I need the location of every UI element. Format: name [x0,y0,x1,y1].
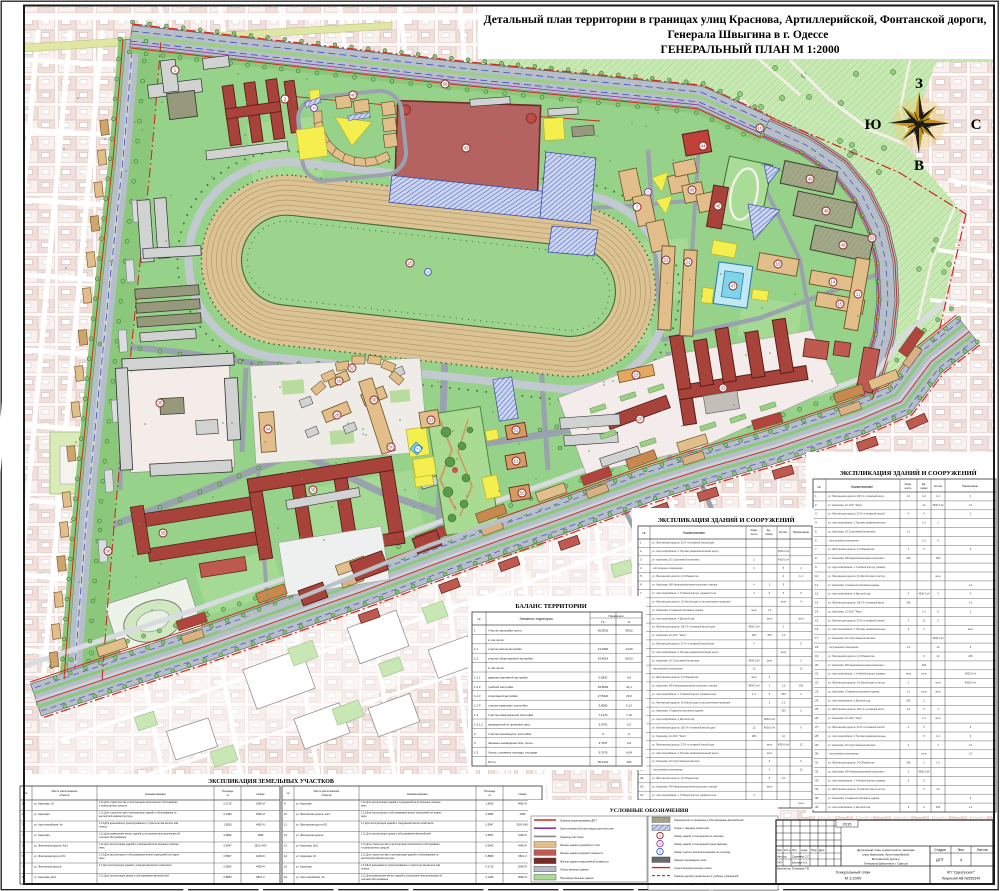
svg-text:34: 34 [266,427,271,432]
svg-text:16: 16 [426,270,430,274]
svg-text:ул. Краснова, 12 АЗС "Темп": ул. Краснова, 12 АЗС "Темп" [828,716,862,720]
svg-text:7,1270: 7,1270 [599,713,608,717]
svg-text:22: 22 [664,258,669,263]
svg-text:ул. Краснова: ул. Краснова [296,802,312,806]
svg-text:10: 10 [658,842,662,846]
svg-text:кв.м: кв.м [781,651,786,654]
svg-text:1.3.1.2: 1.3.1.2 [474,722,483,726]
svg-text:0,1499: 0,1499 [486,875,494,879]
svg-text:0,5832: 0,5832 [599,675,608,679]
svg-text:предприятий по хранению авто: предприятий по хранению авто [488,722,531,726]
svg-text:ул. Фонтанская дорога, 23 9: ул. Фонтанская дорога, 23 9-ти этажный ж… [828,725,885,729]
svg-text:14: 14 [831,280,836,285]
svg-text:ъектами обслуживания: ъектами обслуживания [99,836,127,839]
svg-text:Генеральный план: Генеральный план [836,870,871,875]
svg-text:спортивной застройки: спортивной застройки [488,694,518,698]
svg-text:44: 44 [701,144,706,149]
svg-text:29: 29 [815,743,819,747]
svg-text:16: 16 [284,875,288,879]
svg-text:измер: измер [765,533,773,536]
svg-text:ул. Артиллерийская, 2 Торго: ул. Артиллерийская, 2 Торгово-развлекате… [828,734,886,738]
svg-text:5821-V: 5821-V [518,854,527,858]
svg-text:ул. Фонтанская дорога, 23 9: ул. Фонтанская дорога, 23 9-ти этажный ж… [652,642,714,646]
svg-text:30: 30 [372,398,377,403]
svg-text:2569-VI: 2569-VI [518,865,527,869]
svg-text:Производственные здания: Производственные здания [560,876,594,880]
svg-text:кв.м: кв.м [921,753,926,756]
svg-text:2569-VI: 2569-VI [256,812,265,816]
svg-text:32: 32 [815,769,819,773]
svg-text:1,5829: 1,5829 [486,802,494,806]
svg-text:18: 18 [815,645,819,649]
svg-text:ул. Фонтанская дор-га 8/1: ул. Фонтанская дор-га 8/1 [296,823,328,827]
svg-text:33: 33 [815,778,819,782]
svg-text:кв.м: кв.м [781,601,786,604]
svg-text:ул. Артиллерийская, 2 Торго: ул. Артиллерийская, 2 Торгово-развлекате… [652,751,719,755]
svg-text:кв.м: кв.м [968,628,973,631]
svg-text:Генерала Швыгина в г. Одессе: Генерала Швыгина в г. Одессе [864,862,908,866]
svg-text:21: 21 [686,260,691,265]
svg-text:ул. Краснова, 10 Спортивный: ул. Краснова, 10 Спортивный комплекс [652,658,700,662]
svg-text:250: 250 [906,556,911,560]
svg-text:улиц Краснова, Артиллерийской,: улиц Краснова, Артиллерийской, [862,853,910,857]
svg-text:Этаж-: Этаж- [904,482,911,486]
svg-text:11: 11 [856,292,861,297]
svg-text:1-2: 1-2 [922,494,926,498]
svg-text:участки общественной застройки: участки общественной застройки [488,657,533,661]
svg-text:Наименование: Наименование [145,792,166,796]
svg-text:учебной застройки: учебной застройки [488,685,514,689]
svg-text:29: 29 [337,379,342,384]
svg-text:13: 13 [284,844,288,848]
svg-text:9,2866: 9,2866 [486,812,494,816]
svg-text:ул. Артиллерийская, 1 Учебн: ул. Артиллерийская, 1 Учебный корпус уни… [652,793,717,797]
svg-text:Границы детских дошкольных и у: Границы детских дошкольных и учебных учр… [674,874,739,878]
svg-text:1.1 Для эксплуатации зданий и: 1.1 Для эксплуатации зданий и сооружений… [361,822,434,825]
svg-text:49: 49 [841,243,846,248]
svg-text:2999: 2999 [520,812,526,816]
svg-text:ул. Фонтанская дорога, 14 О: ул. Фонтанская дорога, 14 Общежитие [828,654,875,658]
svg-text:№: № [25,792,28,795]
svg-text:измер: измер [920,487,928,490]
svg-text:56: 56 [443,82,448,87]
svg-text:ул. Фонтанская дорога, 14 О: ул. Фонтанская дорога, 14 Общежитие [652,574,699,578]
svg-text:кв.м: кв.м [906,673,911,676]
svg-text:ул. Фонтанская дорога, 23 9: ул. Фонтанская дорога, 23 9-ти этажный ж… [652,541,714,545]
svg-text:53: 53 [870,236,875,241]
svg-text:4500,0 м²: 4500,0 м² [748,658,759,662]
svg-text:З: З [915,76,923,92]
svg-text:Номер: Номер [519,792,528,796]
svg-text:47: 47 [731,284,736,289]
svg-text:ул. Краснова, 3 Администрат: ул. Краснова, 3 Административное здание [652,608,704,612]
svg-text:Кол-во: Кол-во [934,484,943,488]
svg-text:1-2: 1-2 [969,752,973,756]
svg-text:3: 3 [659,850,661,854]
svg-text:№: № [477,617,480,621]
svg-text:плекса: плекса [99,826,108,829]
svg-text:250: 250 [799,684,804,688]
svg-text:4500,0 м²: 4500,0 м² [748,625,759,629]
svg-text:ул. Фонтанская дорога, 16 Ж: ул. Фонтанская дорога, 16 Жилой дом со в… [828,574,886,578]
svg-text:в том числе:: в том числе: [488,666,505,670]
svg-text:Место расположения: Место расположения [52,789,78,793]
svg-text:кв.м: кв.м [935,690,940,693]
svg-text:23: 23 [312,106,316,110]
svg-text:35: 35 [815,796,819,800]
svg-text:27,5320: 27,5320 [598,694,609,698]
svg-text:Лист: Лист [792,849,798,852]
svg-text:1-2: 1-2 [969,583,973,587]
svg-text:Примечание: Примечание [962,484,979,488]
svg-text:19: 19 [815,654,819,658]
svg-text:Генерала Швыгина в г. Одессе: Генерала Швыгина в г. Одессе [668,28,829,41]
svg-text:ул. Артиллерийская, 2 Торго: ул. Артиллерийская, 2 Торгово-развлекате… [652,650,719,654]
svg-text:15: 15 [838,302,843,307]
svg-text:4500,0 м²: 4500,0 м² [778,742,789,746]
svg-text:ул. Краснова, 6/8 Канализац: ул. Краснова, 6/8 Канализационная насосн… [652,784,718,788]
svg-text:кв.м: кв.м [935,575,940,578]
svg-text:Номер зданий и сооружений суще: Номер зданий и сооружений существующих [674,842,728,846]
svg-text:14,60: 14,60 [625,647,633,651]
svg-text:ул. Краснова, 12 АЗС "Темп": ул. Краснова, 12 АЗС "Темп" [828,609,862,613]
svg-text:Участки застройки, всего: Участки застройки, всего [488,628,522,632]
svg-text:250: 250 [968,654,973,658]
svg-text:250: 250 [936,556,941,560]
svg-text:4500,0 м²: 4500,0 м² [932,503,943,507]
svg-text:95,4341: 95,4341 [598,760,609,764]
svg-text:Ю: Ю [865,117,882,133]
svg-text:ул. Артиллерийская, 4а: ул. Артиллерийская, 4а [296,875,325,879]
svg-text:52: 52 [514,428,519,433]
svg-text:0,5947: 0,5947 [486,823,494,827]
svg-text:Жилые здания усадебного типа: Жилые здания усадебного типа [560,843,600,847]
svg-text:Общественные здания: Общественные здания [560,868,589,872]
svg-text:2015: 2015 [843,822,853,827]
svg-text:1.2.2: 1.2.2 [474,685,481,689]
svg-text:кв.м: кв.м [751,676,756,679]
svg-text:Улицы, основные проезды, площа: Улицы, основные проезды, площади [488,751,538,755]
svg-text:12: 12 [815,592,819,596]
svg-text:- встроенные помещения: - встроенные помещения [652,668,683,671]
svg-text:ул. Фонтанская дорога, 16 Ж: ул. Фонтанская дорога, 16 Жилой дом со в… [828,787,886,791]
svg-text:№: № [287,792,290,795]
svg-text:99,02: 99,02 [625,628,633,632]
svg-text:15: 15 [815,618,819,622]
svg-text:1.11 Для эксплуатации зданий и: 1.11 Для эксплуатации зданий и сооружени… [99,843,179,846]
svg-text:27: 27 [815,725,819,729]
svg-text:Зеленые насаждения общ. польз.: Зеленые насаждения общ. польз. [488,741,534,745]
svg-text:в том числе:: в том числе: [488,638,505,642]
svg-text:4500,0 м²: 4500,0 м² [764,726,775,730]
svg-text:Граница участочка: Граница участочка [560,835,584,839]
svg-text:0,8580: 0,8580 [486,854,494,858]
svg-text:1.2.3: 1.2.3 [474,694,481,698]
svg-text:250: 250 [936,805,941,809]
svg-text:6,04: 6,04 [626,751,632,755]
svg-text:15: 15 [284,865,288,869]
svg-text:ул. Артиллерийская, 1 Учебн: ул. Артиллерийская, 1 Учебный корпус уни… [652,692,717,696]
svg-text:3,9: 3,9 [627,741,631,745]
svg-text:объекта: объекта [60,793,70,797]
svg-text:Детальный план территории в гр: Детальный план территории в границах [857,848,915,852]
svg-text:ул. Краснова: ул. Краснова [34,833,50,837]
svg-text:торгово-развлекат. застройки: торгово-развлекат. застройки [488,704,528,708]
svg-text:20: 20 [638,417,643,422]
svg-text:1.1: 1.1 [474,647,478,651]
svg-text:14: 14 [284,854,288,858]
svg-text:1.11 Для эксплуатации домов и: 1.11 Для эксплуатации домов и обслуживан… [99,875,169,878]
svg-text:4493-IV: 4493-IV [256,865,265,869]
svg-text:54: 54 [416,447,420,451]
svg-text:4500,0 м²: 4500,0 м² [918,592,929,596]
svg-text:я транспортных средств: я транспортных средств [99,805,128,808]
svg-text:7,16: 7,16 [626,713,632,717]
svg-text:0,1499: 0,1499 [224,812,232,816]
svg-text:2569-VI: 2569-VI [518,875,527,879]
svg-text:ул. Артиллерийская, 2 Торго: ул. Артиллерийская, 2 Торгово-развлекате… [828,521,886,525]
svg-text:ул. Фонтанская дорога, 14 О: ул. Фонтанская дорога, 14 Общежитие [652,776,699,780]
svg-text:ул. Фонтанская дорога, 18/1: ул. Фонтанская дорога, 18/1 4-х этажный … [828,601,885,605]
svg-text:ул. Краснова, 10 Спортивный: ул. Краснова, 10 Спортивный комплекс [828,743,876,747]
svg-text:ул. Артиллерийская, 1 Учебн: ул. Артиллерийская, 1 Учебный корпус уни… [828,672,886,676]
svg-text:66,53: 66,53 [625,657,633,661]
svg-text:10: 10 [758,126,763,131]
svg-text:ул. Краснова, 10 Спортивный: ул. Краснова, 10 Спортивный комплекс [652,759,700,763]
svg-text:ул. Артиллерийская, 4 Детск: ул. Артиллерийская, 4 Детский сад [652,616,695,620]
svg-text:Лист: Лист [957,848,965,852]
svg-text:Место расположения: Место расположения [314,789,340,793]
svg-text:ул. Фонтанская дорога, 18/1: ул. Фонтанская дорога, 18/1 4-х этажный … [828,494,885,498]
svg-text:1: 1 [659,834,661,838]
svg-text:Ед.: Ед. [922,482,926,486]
svg-text:0,0963: 0,0963 [224,865,232,869]
svg-text:19: 19 [776,262,781,267]
svg-text:ГЕНЕРАЛЬНЫЙ ПЛАН М 1:2000: ГЕНЕРАЛЬНЫЙ ПЛАН М 1:2000 [660,42,839,56]
svg-text:ность: ность [751,533,758,536]
svg-text:5,9762: 5,9762 [599,722,608,726]
svg-text:Дата: Дата [819,849,825,852]
svg-text:9,2866: 9,2866 [224,833,232,837]
svg-text:кв.м: кв.м [921,673,926,676]
svg-text:ЭКСПЛИКАЦИЯ ЗДАНИЙ И СООРУЖ: ЭКСПЛИКАЦИЯ ЗДАНИЙ И СООРУЖЕНИЙ [839,469,976,477]
svg-text:13: 13 [815,601,819,605]
svg-text:4681-IV: 4681-IV [518,802,527,806]
svg-text:38: 38 [106,549,111,554]
svg-text:48: 48 [824,209,829,214]
svg-text:Кол.уч: Кол.уч [784,849,792,852]
svg-text:1.13 Для эксплуатации и обслуж: 1.13 Для эксплуатации и обслуживания жил… [99,854,180,857]
svg-text:ул. Краснова, 10 Спортивный: ул. Краснова, 10 Спортивный комплекс [652,557,700,561]
svg-text:1.2.1: 1.2.1 [474,675,481,679]
svg-text:1.1 Для эксплуатации зданий и: 1.1 Для эксплуатации зданий и сооружений… [99,864,172,867]
svg-text:1-2: 1-2 [907,645,911,649]
svg-text:250: 250 [781,692,786,696]
svg-text:Участки производств. застройки: Участки производств. застройки [488,732,532,736]
svg-text:250: 250 [906,761,911,765]
svg-text:0,5947: 0,5947 [224,844,232,848]
svg-text:6,13: 6,13 [626,704,632,708]
svg-text:кв.м: кв.м [767,743,772,746]
svg-text:Наименование: Наименование [407,792,428,796]
svg-text:29,6: 29,6 [626,694,632,698]
svg-text:Подп: Подп [811,849,817,852]
svg-text:я транспортных средств: я транспортных средств [361,847,390,850]
svg-text:Номер: Номер [257,792,266,796]
svg-text:ул. Краснова, 3 Администрат: ул. Краснова, 3 Административное здание [828,583,880,587]
svg-text:ул. Артиллерийская, 4 Детск: ул. Артиллерийская, 4 Детский сад [828,698,871,702]
svg-text:Граница моделирования ДПТ: Граница моделирования ДПТ [560,818,597,822]
svg-text:кв.м: кв.м [751,609,756,612]
svg-text:25: 25 [408,261,413,266]
svg-text:ул. Фонтанская дорога, 18/1: ул. Фонтанская дорога, 18/1 4-х этажный … [828,707,885,711]
svg-text:ул. Фонтанская дорога, 18/1: ул. Фонтанская дорога, 18/1 4-х этажный … [652,625,715,629]
svg-text:объекта: объекта [322,793,332,797]
svg-text:ул. Краснова, 12 АЗС "Темп": ул. Краснова, 12 АЗС "Темп" [828,503,862,507]
svg-text:1-2: 1-2 [922,716,926,720]
svg-text:ул. Краснова, 6/8 Канализац: ул. Краснова, 6/8 Канализационная насосн… [828,556,885,560]
svg-text:4500,0 м²: 4500,0 м² [778,557,789,561]
svg-text:Номер зданий и сооружений по г: Номер зданий и сооружений по генплану [674,834,724,838]
svg-text:14: 14 [815,609,819,613]
svg-text:ЭКСПЛИКАЦИЯ ЗДАНИЙ И СООРУЖ: ЭКСПЛИКАЦИЯ ЗДАНИЙ И СООРУЖЕНИЙ [657,516,794,524]
svg-text:1.2: 1.2 [474,657,478,661]
svg-text:Элементы территории: Элементы территории [519,617,552,621]
svg-text:1-2: 1-2 [799,574,803,578]
svg-text:1-2: 1-2 [969,601,973,605]
svg-text:1-2: 1-2 [768,608,772,612]
svg-text:ул. Артиллерийская, 1 Учебн: ул. Артиллерийская, 1 Учебный корпус уни… [828,778,886,782]
svg-text:ЭКСПЛИКАЦИЯ ЗЕМЕЛЬНЫХ УЧАСТКОВ: ЭКСПЛИКАЦИЯ ЗЕМЕЛЬНЫХ УЧАСТКОВ [208,779,334,785]
svg-text:1-2: 1-2 [907,689,911,693]
svg-text:1.11 Для эксплуатации зданий и: 1.11 Для эксплуатации зданий и сооружени… [361,801,441,804]
svg-text:ул. Краснова, 3 Администрат: ул. Краснова, 3 Административное здание [652,709,704,713]
svg-text:ул. Артиллерийская, 2 Торго: ул. Артиллерийская, 2 Торгово-развлекате… [652,549,719,553]
svg-text:65,9032: 65,9032 [598,628,609,632]
svg-text:ул. Краснова, 16: ул. Краснова, 16 [296,854,316,858]
svg-text:10: 10 [284,812,288,816]
svg-text:Итого: Итого [488,760,496,764]
svg-text:5821-V: 5821-V [256,875,265,879]
svg-text:- встроенные помещения: - встроенные помещения [828,646,859,649]
svg-text:ул. Краснова, 6/8 Канализац: ул. Краснова, 6/8 Канализационная насосн… [828,769,885,773]
svg-text:КП "Одеспроект": КП "Одеспроект" [947,871,976,875]
svg-text:250: 250 [906,601,911,605]
svg-text:кв.м: кв.м [767,785,772,788]
svg-text:250: 250 [781,709,786,713]
svg-text:ул. Краснова, 10 Спортивный: ул. Краснова, 10 Спортивный комплекс [828,529,876,533]
svg-text:4493-IV: 4493-IV [518,833,527,837]
svg-text:5,7679: 5,7679 [599,751,608,755]
svg-text:В: В [914,158,924,174]
svg-text:ул. Краснова, 10 Спортивный: ул. Краснова, 10 Спортивный комплекс [828,636,876,640]
svg-text:ул. Фонтанская дорога, 23 9: ул. Фонтанская дорога, 23 9-ти этажный ж… [828,512,885,516]
svg-text:250: 250 [922,663,927,667]
svg-text:0,1715: 0,1715 [486,865,494,869]
svg-text:ул. Фонтанская дорога: ул. Фонтанская дорога [34,865,62,869]
svg-text:ул. Артиллерийская, 2 Торго: ул. Артиллерийская, 2 Торгово-развлекате… [828,627,886,631]
svg-text:33: 33 [721,386,726,391]
svg-text:1-2: 1-2 [936,734,940,738]
svg-text:ул. Краснова, 12 АЗС "Темп": ул. Краснова, 12 АЗС "Темп" [652,734,686,738]
svg-text:ъектами обслуживания: ъектами обслуживания [361,878,389,881]
svg-text:0,0963: 0,0963 [486,844,494,848]
svg-text:31,1: 31,1 [626,685,632,689]
svg-text:0,5967: 0,5967 [486,833,494,837]
svg-text:кв.м: кв.м [767,659,772,662]
svg-text:ул. Фонтанская дорога, 23 9: ул. Фонтанская дорога, 23 9-ти этажный ж… [652,742,714,746]
svg-text:6,2: 6,2 [627,722,631,726]
svg-text:1.13 Для дальнейшего проектиро: 1.13 Для дальнейшего проектирования и ст… [361,864,440,867]
svg-text:Лицензия АВ №555349: Лицензия АВ №555349 [942,877,981,881]
svg-text:ории: ории [361,815,367,818]
svg-text:2569-VI: 2569-VI [256,802,265,806]
svg-text:28: 28 [335,413,340,418]
svg-text:1-2: 1-2 [936,761,940,765]
svg-text:2999: 2999 [258,833,264,837]
svg-text:4500,0 м²: 4500,0 м² [965,681,976,685]
svg-text:Сурженко С.С: Сурженко С.С [792,855,809,859]
svg-text:1-2: 1-2 [782,700,786,704]
svg-text:40: 40 [351,93,356,98]
svg-text:1-2: 1-2 [969,805,973,809]
svg-text:1-2: 1-2 [936,494,940,498]
svg-text:0,6: 0,6 [627,675,631,679]
svg-text:45: 45 [690,188,695,193]
svg-text:Предприятия по хранению и обсл: Предприятия по хранению и обслуживанию а… [674,818,744,822]
svg-text:ул. Краснова, 12 АЗС "Темп": ул. Краснова, 12 АЗС "Темп" [652,633,686,637]
svg-text:административной застройки: административной застройки [488,675,528,679]
svg-text:31: 31 [815,761,819,765]
svg-text:0,1715: 0,1715 [224,802,232,806]
svg-text:Площадь: Площадь [222,789,234,793]
svg-text:ул. Артиллерийская, 4 Детск: ул. Артиллерийская, 4 Детский сад [652,717,695,721]
svg-text:Архитектор: Архитектор [777,867,791,871]
svg-text:250: 250 [767,633,772,637]
svg-text:ул. Краснова, 6/8 Канализац: ул. Краснова, 6/8 Канализационная насосн… [652,583,718,587]
svg-text:100: 100 [627,760,632,764]
svg-text:1-2: 1-2 [922,538,926,542]
svg-text:Изм: Изм [777,849,782,852]
svg-text:ул. Фонтанская дорога, 14 О: ул. Фонтанская дорога, 14 Общежитие [652,675,699,679]
svg-text:16: 16 [815,627,819,631]
svg-text:кв.м: кв.м [935,682,940,685]
svg-text:ул. Фонтанская дор-га 8/1: ул. Фонтанская дор-га 8/1 [34,854,66,858]
svg-text:24: 24 [815,698,819,702]
svg-text:26: 26 [815,716,819,720]
svg-text:ул. Фонтанская дорога, 14 О: ул. Фонтанская дорога, 14 Общежитие [828,761,875,765]
svg-text:- встроенные помещения: - встроенные помещения [828,539,859,542]
svg-text:ул. Артиллерийская, 1 Учебн: ул. Артиллерийская, 1 Учебный корпус уни… [652,591,717,595]
svg-text:ул. Краснова, 3 Администрат: ул. Краснова, 3 Административное здание [828,689,880,693]
svg-text:2: 2 [647,190,649,194]
svg-text:250: 250 [752,633,757,637]
svg-text:кв.м: кв.м [798,617,803,620]
svg-text:Зоны влияния Штатов градострои: Зоны влияния Штатов градостроительства [560,827,614,831]
svg-text:34: 34 [815,787,819,791]
svg-text:30: 30 [640,784,644,788]
svg-text:29: 29 [640,776,644,780]
svg-text:Площадь: Площадь [484,789,496,793]
svg-text:ул. Фонтанская дорога, 18/1: ул. Фонтанская дорога, 18/1 4-х этажный … [652,726,715,730]
svg-text:1-2: 1-2 [907,529,911,533]
svg-text:ул. Артиллерийская, 4 Детск: ул. Артиллерийская, 4 Детский сад [828,592,871,596]
svg-text:ории: ории [99,857,105,860]
svg-text:52: 52 [350,366,355,371]
svg-text:кв.м: кв.м [767,752,772,755]
svg-text:- встроенные помещения: - встроенные помещения [652,769,683,772]
svg-text:плекса: плекса [361,868,370,871]
